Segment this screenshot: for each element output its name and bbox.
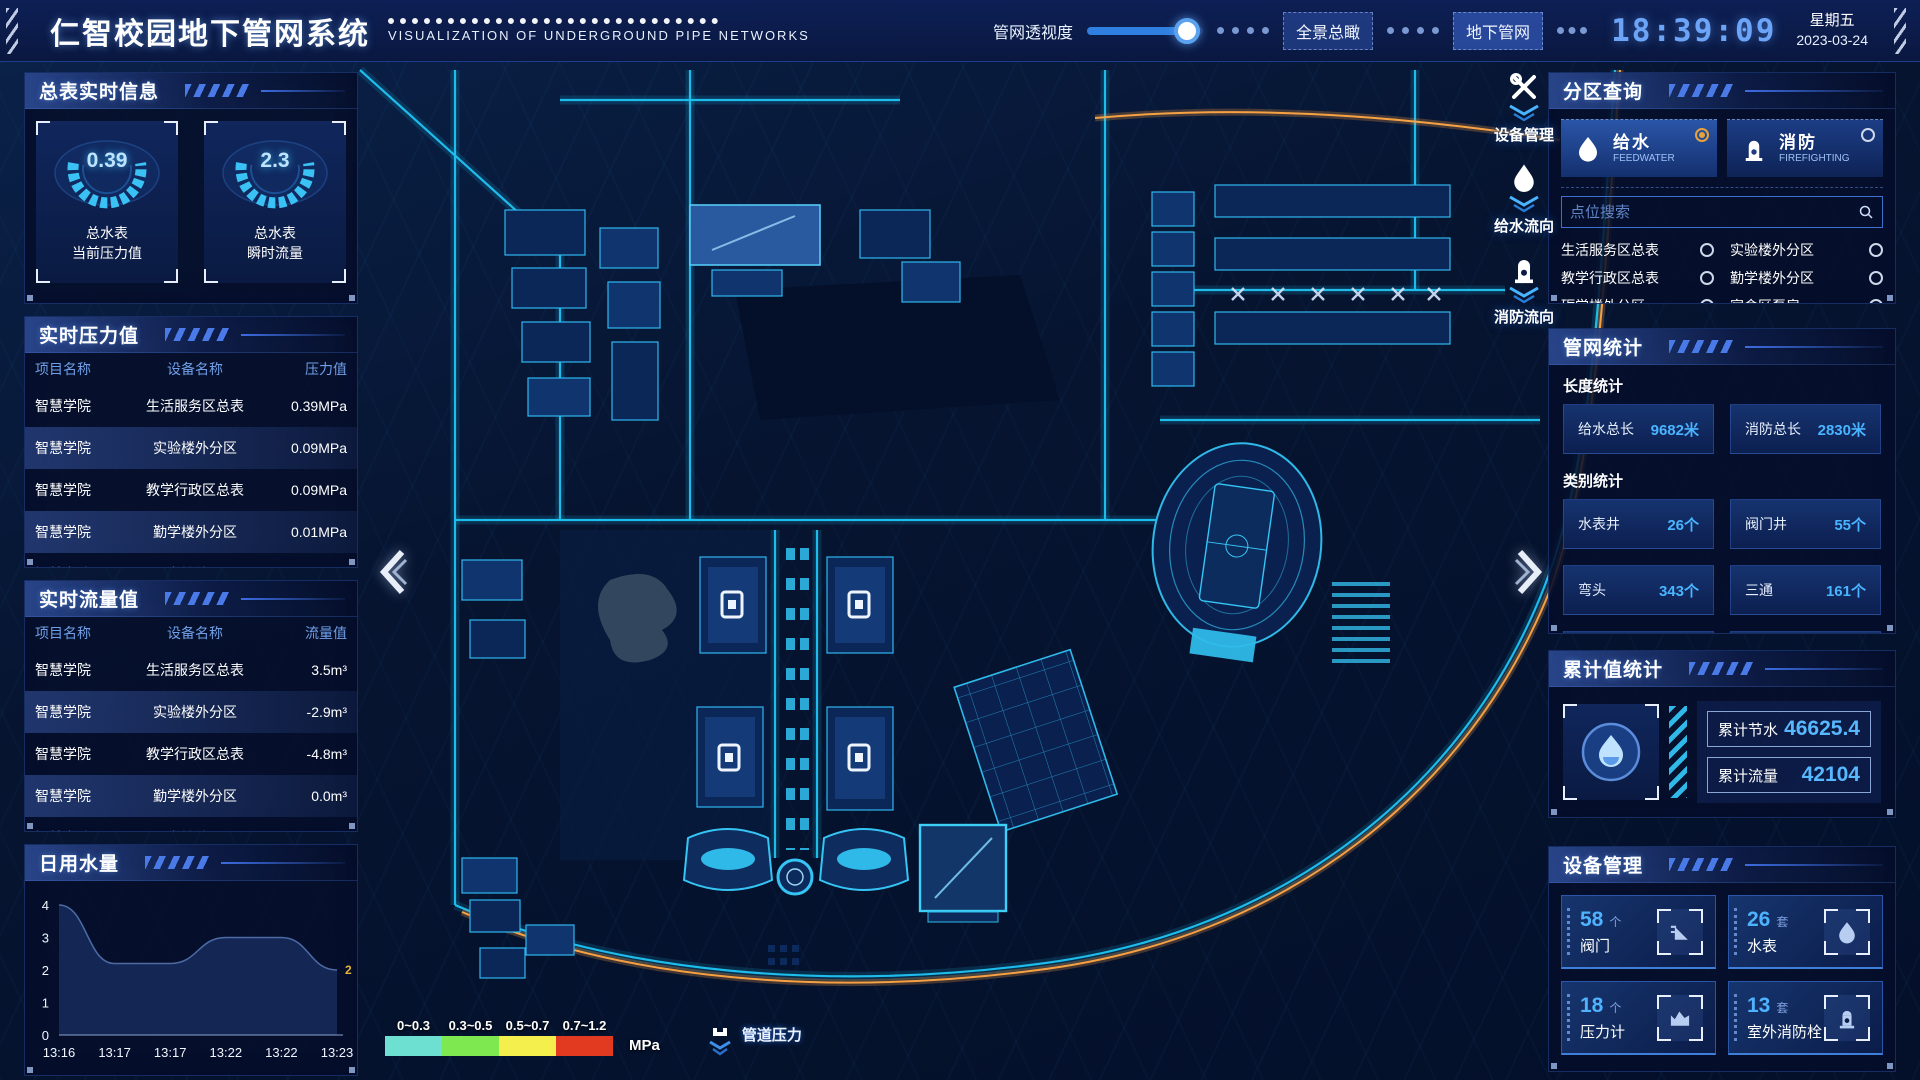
firefighting-flow-tool[interactable]: 消防流向 — [1478, 252, 1570, 327]
legend-swatch — [556, 1036, 613, 1056]
dot-separator — [1217, 27, 1269, 34]
svg-text:4: 4 — [42, 898, 49, 913]
water-drop-icon — [1509, 161, 1539, 195]
chevron-down-icon — [1504, 195, 1544, 213]
svg-text:13:17: 13:17 — [98, 1045, 131, 1060]
header-line-decoration — [1745, 90, 1883, 92]
table-row: 智慧学院生活服务区总表3.5m³ — [25, 649, 357, 691]
panel-title: 分区查询 — [1563, 77, 1643, 104]
radio-unselected[interactable] — [1700, 243, 1714, 257]
table-row: 智慧学院勤学楼外分区0.01MPa — [25, 511, 357, 553]
radio-unselected[interactable] — [1700, 299, 1714, 304]
fire-hydrant-icon — [1509, 252, 1539, 286]
pipe-stats-panel: 管网统计 长度统计 给水总长9682米 消防总长2830米 类别统计 水表井26… — [1548, 328, 1896, 634]
date: 2023-03-24 — [1796, 31, 1868, 50]
device-management-panel: 设备管理 58个 阀门 26套 水表 — [1548, 846, 1896, 1072]
chevron-down-icon — [1504, 286, 1544, 304]
valve-device-card[interactable]: 58个 阀门 — [1561, 895, 1716, 969]
hydrant-device-card[interactable]: 13套 室外消防栓 — [1728, 981, 1883, 1055]
zone-option-list: 生活服务区总表 实验楼外分区 教学行政区总表 勤学楼外分区 砺学楼外分区 宿舍区… — [1561, 236, 1883, 304]
svg-text:13:22: 13:22 — [210, 1045, 243, 1060]
panel-title: 日用水量 — [39, 849, 119, 876]
panel-header: 实时压力值 — [25, 317, 357, 353]
category-stats-label: 类别统计 — [1563, 470, 1881, 491]
gauge-arc — [47, 129, 167, 217]
slashes-decoration — [1669, 340, 1735, 353]
stat-box: 消防总长2830米 — [1730, 404, 1881, 454]
tools-icon — [1507, 70, 1541, 104]
slashes-decoration — [1669, 84, 1735, 97]
legend-swatch — [385, 1036, 442, 1056]
cumulative-flow: 累计流量42104 — [1707, 757, 1871, 793]
stat-box-clipped — [1730, 631, 1881, 634]
date-block: 星期五 2023-03-24 — [1796, 11, 1868, 50]
cumulative-values: 累计节水46625.4 累计流量42104 — [1697, 701, 1881, 803]
panel-header: 实时流量值 — [25, 581, 357, 617]
stat-box-clipped — [1563, 631, 1714, 634]
gauge-dial: 0.39 — [47, 129, 167, 217]
panel-title: 设备管理 — [1563, 851, 1643, 878]
zone-option[interactable]: 砺学楼外分区 — [1561, 292, 1714, 304]
table-row: 智慧学院生活服务区总表0.39MPa — [25, 385, 357, 427]
category-stats-grid: 水表井26个 阀门井55个 弯头343个 三通161个 — [1563, 499, 1881, 634]
svg-text:0: 0 — [42, 1028, 49, 1043]
transparency-slider[interactable] — [1087, 27, 1203, 35]
overview-button[interactable]: 全景总瞰 — [1283, 12, 1373, 50]
fire-hydrant-icon — [1739, 134, 1769, 164]
stat-box: 水表井26个 — [1563, 499, 1714, 549]
chevron-down-icon — [706, 1040, 734, 1056]
table-row: 智慧学院教学行政区总表0.09MPa — [25, 469, 357, 511]
map-ladder-decoration — [1332, 582, 1390, 668]
header-line-decoration — [261, 90, 345, 92]
svg-text:13:17: 13:17 — [154, 1045, 187, 1060]
zone-option[interactable]: 实验楼外分区 — [1730, 236, 1883, 264]
header-line-decoration — [1765, 668, 1883, 670]
gauge-arc — [215, 129, 335, 217]
valve-icon — [1657, 909, 1703, 955]
legend-labels: 0~0.3 0.3~0.5 0.5~0.7 0.7~1.2 — [385, 1018, 613, 1033]
app-subtitle: VISUALIZATION OF UNDERGROUND PIPE NETWOR… — [388, 28, 810, 43]
table-header: 项目名称 设备名称 流量值 — [25, 617, 357, 649]
header-controls: 管网透视度 全景总瞰 地下管网 18:39:09 星期五 2023-03-24 — [993, 8, 1920, 54]
gauge-value: 0.39 — [47, 149, 167, 173]
firefighting-toggle[interactable]: 消防 FIREFIGHTING — [1727, 119, 1883, 177]
realtime-pressure-panel: 实时压力值 项目名称 设备名称 压力值 智慧学院生活服务区总表0.39MPa 智… — [24, 316, 358, 568]
slashes-decoration — [165, 592, 231, 605]
table-row: 智慧学院实验楼外分区0.09MPa — [25, 427, 357, 469]
dashed-divider — [1561, 187, 1883, 188]
radio-unselected[interactable] — [1700, 271, 1714, 285]
header-right-stripes-decoration — [1894, 8, 1906, 54]
svg-text:2: 2 — [42, 963, 49, 978]
pipe-pressure-label: 管道压力 — [742, 1024, 802, 1045]
panel-header: 累计值统计 — [1549, 651, 1895, 687]
stat-box: 给水总长9682米 — [1563, 404, 1714, 454]
pressure-gauge-icon — [1657, 995, 1703, 1041]
transparency-slider-handle[interactable] — [1174, 18, 1200, 44]
map-toolbar: 设备管理 给水流向 消防流向 — [1478, 70, 1570, 327]
panel-title: 总表实时信息 — [39, 77, 159, 104]
realtime-flow-panel: 实时流量值 项目名称 设备名称 流量值 智慧学院生活服务区总表3.5m³ 智慧学… — [24, 580, 358, 832]
pressure-gauge: 0.39 总水表 当前压力值 — [36, 121, 178, 283]
header-line-decoration — [221, 862, 345, 864]
chevron-down-icon — [1504, 104, 1544, 122]
slashes-decoration — [145, 856, 211, 869]
daily-usage-panel: 日用水量 0123413:1613:1713:1713:2213:2213:23… — [24, 844, 358, 1076]
stat-box: 三通161个 — [1730, 565, 1881, 615]
legend-color-bar — [385, 1036, 613, 1056]
zone-option[interactable]: 生活服务区总表 — [1561, 236, 1714, 264]
clock: 18:39:09 — [1611, 13, 1776, 49]
weekday: 星期五 — [1796, 11, 1868, 31]
svg-text:13:23: 13:23 — [321, 1045, 354, 1060]
feedwater-toggle[interactable]: 给水 FEEDWATER — [1561, 119, 1717, 177]
search-box — [1561, 196, 1883, 228]
device-grid: 58个 阀门 26套 水表 18个 压力计 — [1549, 883, 1895, 1055]
svg-text:13:16: 13:16 — [43, 1045, 76, 1060]
zone-option[interactable]: 教学行政区总表 — [1561, 264, 1714, 292]
search-input[interactable] — [1570, 204, 1858, 221]
panel-title: 累计值统计 — [1563, 655, 1663, 682]
header-left-stripes-decoration — [6, 8, 18, 54]
panel-header: 总表实时信息 — [25, 73, 357, 109]
radio-unselected[interactable] — [1869, 243, 1883, 257]
gauge-label: 总水表 当前压力值 — [72, 223, 142, 264]
device-management-tool[interactable]: 设备管理 — [1478, 70, 1570, 145]
svg-text:1: 1 — [42, 996, 49, 1011]
title-dots-decoration — [388, 18, 718, 24]
legend-swatch — [499, 1036, 556, 1056]
legend-unit: MPa — [629, 1037, 660, 1054]
cumulative-saving: 累计节水46625.4 — [1707, 711, 1871, 747]
pipe-pressure-label-group: 管道压力 — [706, 1022, 802, 1056]
slashes-decoration — [1669, 858, 1735, 871]
zone-option[interactable]: 勤学楼外分区 — [1730, 264, 1883, 292]
panel-title: 实时流量值 — [39, 585, 139, 612]
header-line-decoration — [241, 598, 345, 600]
length-stats-grid: 给水总长9682米 消防总长2830米 — [1563, 404, 1881, 454]
feedwater-flow-tool[interactable]: 给水流向 — [1478, 161, 1570, 236]
slashes-decoration — [165, 328, 231, 341]
table-row: 智慧学院实验楼外分区-2.9m³ — [25, 691, 357, 733]
water-icon-card — [1563, 704, 1659, 800]
radio-unselected[interactable] — [1861, 128, 1875, 142]
header-line-decoration — [1745, 346, 1883, 348]
legend-ranges: 0~0.3 0.3~0.5 0.5~0.7 0.7~1.2 — [385, 1018, 613, 1056]
stat-box: 阀门井55个 — [1730, 499, 1881, 549]
gauge-value: 2.3 — [215, 149, 335, 173]
stripe-decoration — [1669, 706, 1687, 798]
svg-text:2: 2 — [345, 963, 352, 977]
gauges-row: 0.39 总水表 当前压力值 2.3 总水表 — [25, 109, 357, 283]
flow-gauge: 2.3 总水表 瞬时流量 — [204, 121, 346, 283]
length-stats-label: 长度统计 — [1563, 375, 1881, 396]
zone-option[interactable]: 宿舍区泵房 — [1730, 292, 1883, 304]
header-line-decoration — [1745, 864, 1883, 866]
search-icon[interactable] — [1858, 204, 1874, 220]
water-meter-icon — [1824, 909, 1870, 955]
svg-text:3: 3 — [42, 931, 49, 946]
table-row: 智慧学院勤学楼外分区0.0m³ — [25, 775, 357, 817]
panel-title: 实时压力值 — [39, 321, 139, 348]
table-row: 智慧学院教学行政区总表-4.8m³ — [25, 733, 357, 775]
panel-header: 分区查询 — [1549, 73, 1895, 109]
radio-unselected[interactable] — [1869, 299, 1883, 304]
svg-text:13:22: 13:22 — [265, 1045, 298, 1060]
panel-header: 设备管理 — [1549, 847, 1895, 883]
zone-query-panel: 分区查询 给水 FEEDWATER — [1548, 72, 1896, 304]
gauge-label: 总水表 瞬时流量 — [247, 223, 303, 264]
right-sidebar: 分区查询 给水 FEEDWATER — [1548, 72, 1896, 1072]
table-row: 智慧学院砺学楼外分区2.3m³ — [25, 817, 357, 832]
cumulative-content: 累计节水46625.4 累计流量42104 — [1549, 687, 1895, 803]
dot-separator — [1387, 27, 1439, 34]
pan-left-arrow[interactable] — [376, 548, 410, 596]
pressure-meter-icon — [706, 1022, 734, 1056]
daily-usage-chart: 0123413:1613:1713:1713:2213:2213:232 — [25, 889, 355, 1069]
header-line-decoration — [241, 334, 345, 336]
table-row: 智慧学院砺学楼外分区0.00MPa — [25, 553, 357, 568]
slashes-decoration — [1689, 662, 1755, 675]
title-subtitle-block: VISUALIZATION OF UNDERGROUND PIPE NETWOR… — [388, 18, 810, 43]
app-title: 仁智校园地下管网系统 — [50, 9, 370, 53]
left-sidebar: 总表实时信息 0.39 总水表 当前压力值 — [24, 72, 358, 1076]
panel-header: 日用水量 — [25, 845, 357, 881]
water-meter-device-card[interactable]: 26套 水表 — [1728, 895, 1883, 969]
pressure-legend: 0~0.3 0.3~0.5 0.5~0.7 0.7~1.2 MPa 管道压力 — [385, 1018, 802, 1056]
transparency-slider-fill — [1087, 27, 1187, 35]
fire-hydrant-icon — [1824, 995, 1870, 1041]
table-header: 项目名称 设备名称 压力值 — [25, 353, 357, 385]
radio-unselected[interactable] — [1869, 271, 1883, 285]
panel-header: 管网统计 — [1549, 329, 1895, 365]
slashes-decoration — [185, 84, 251, 97]
meter-info-panel: 总表实时信息 0.39 总水表 当前压力值 — [24, 72, 358, 304]
network-toggles: 给水 FEEDWATER 消防 FIREFIGHTING — [1549, 109, 1895, 177]
pressure-gauge-device-card[interactable]: 18个 压力计 — [1561, 981, 1716, 1055]
cumulative-stats-panel: 累计值统计 累计节水46625.4 累计流量42104 — [1548, 650, 1896, 818]
gauge-dial: 2.3 — [215, 129, 335, 217]
water-drop-icon — [1573, 134, 1603, 164]
panel-title: 管网统计 — [1563, 333, 1643, 360]
stat-box: 弯头343个 — [1563, 565, 1714, 615]
header-bar: 仁智校园地下管网系统 VISUALIZATION OF UNDERGROUND … — [0, 0, 1920, 62]
radio-selected[interactable] — [1695, 128, 1709, 142]
water-drop-icon — [1580, 721, 1642, 783]
underground-network-button[interactable]: 地下管网 — [1453, 12, 1543, 50]
transparency-label: 管网透视度 — [993, 19, 1073, 43]
pan-right-arrow[interactable] — [1512, 548, 1546, 596]
legend-swatch — [442, 1036, 499, 1056]
dot-separator — [1557, 27, 1587, 34]
